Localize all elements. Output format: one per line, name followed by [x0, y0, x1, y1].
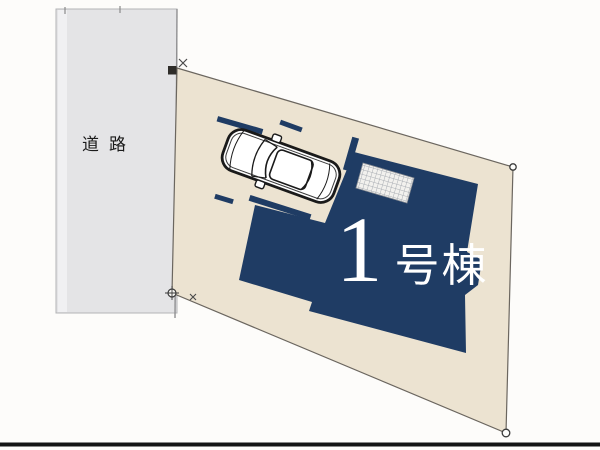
bottom-border-rule	[0, 443, 600, 447]
marker-top-right-circle	[510, 164, 516, 170]
building-label: 1号棟	[336, 204, 489, 297]
building-number: 1	[336, 199, 383, 302]
building-suffix: 号棟	[395, 241, 489, 291]
site-plan-canvas	[0, 0, 600, 450]
site-plan: 道路 1号棟	[0, 0, 600, 450]
marker-top-left-square	[168, 66, 177, 75]
road	[56, 6, 177, 318]
marker-top-left-cross	[179, 59, 187, 67]
marker-bottom-right-circle	[502, 429, 510, 437]
road-label: 道路	[82, 136, 136, 153]
road-light-band	[58, 10, 67, 312]
